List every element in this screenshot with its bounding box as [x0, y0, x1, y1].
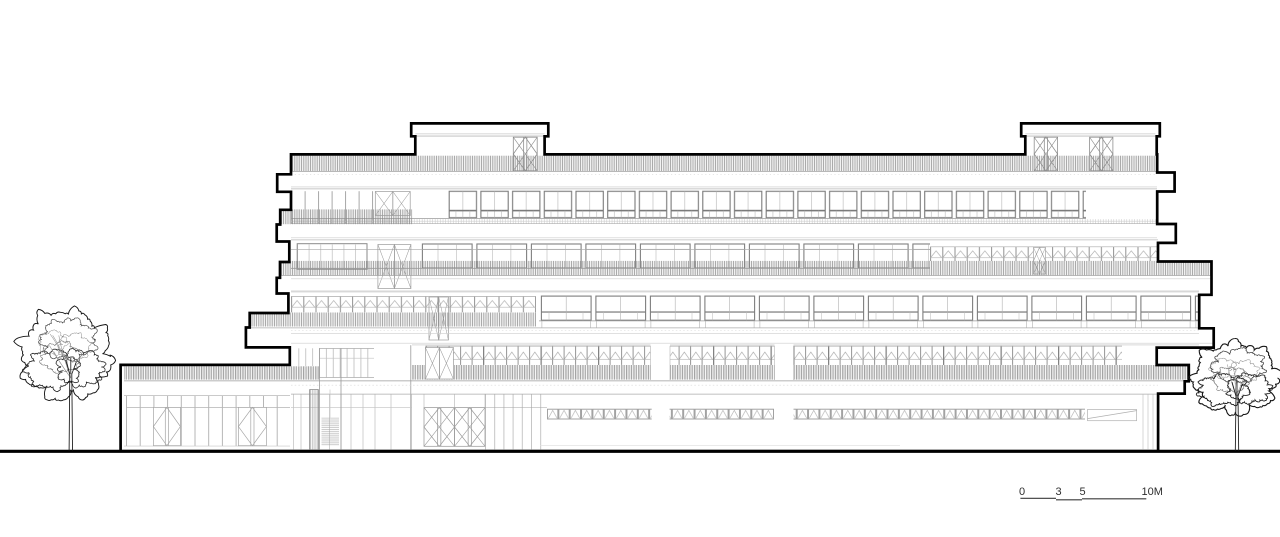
svg-text:0: 0 — [1019, 486, 1025, 498]
svg-text:3: 3 — [1056, 486, 1062, 498]
svg-text:10M: 10M — [1142, 486, 1163, 498]
svg-text:5: 5 — [1080, 486, 1086, 498]
